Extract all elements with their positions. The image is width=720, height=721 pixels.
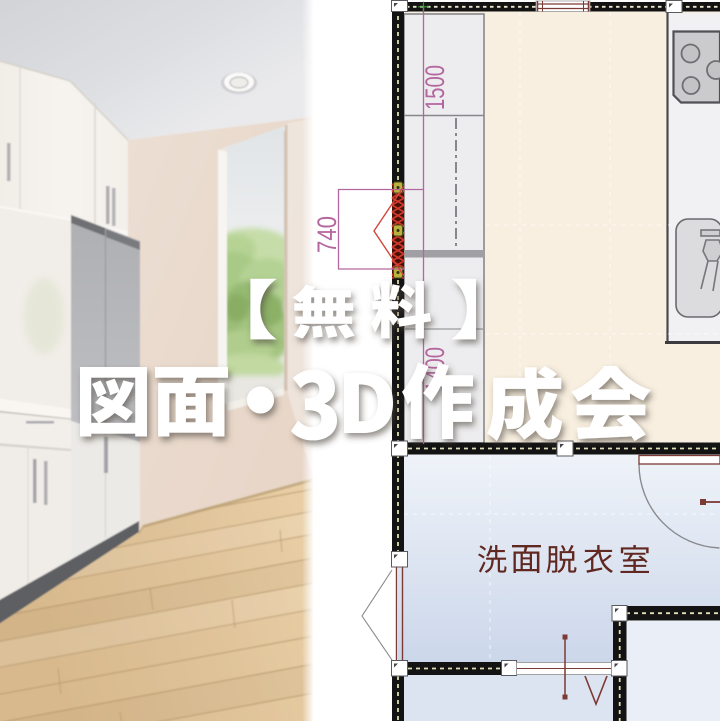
- svg-text:1500: 1500: [420, 65, 450, 110]
- svg-text:740: 740: [312, 216, 342, 253]
